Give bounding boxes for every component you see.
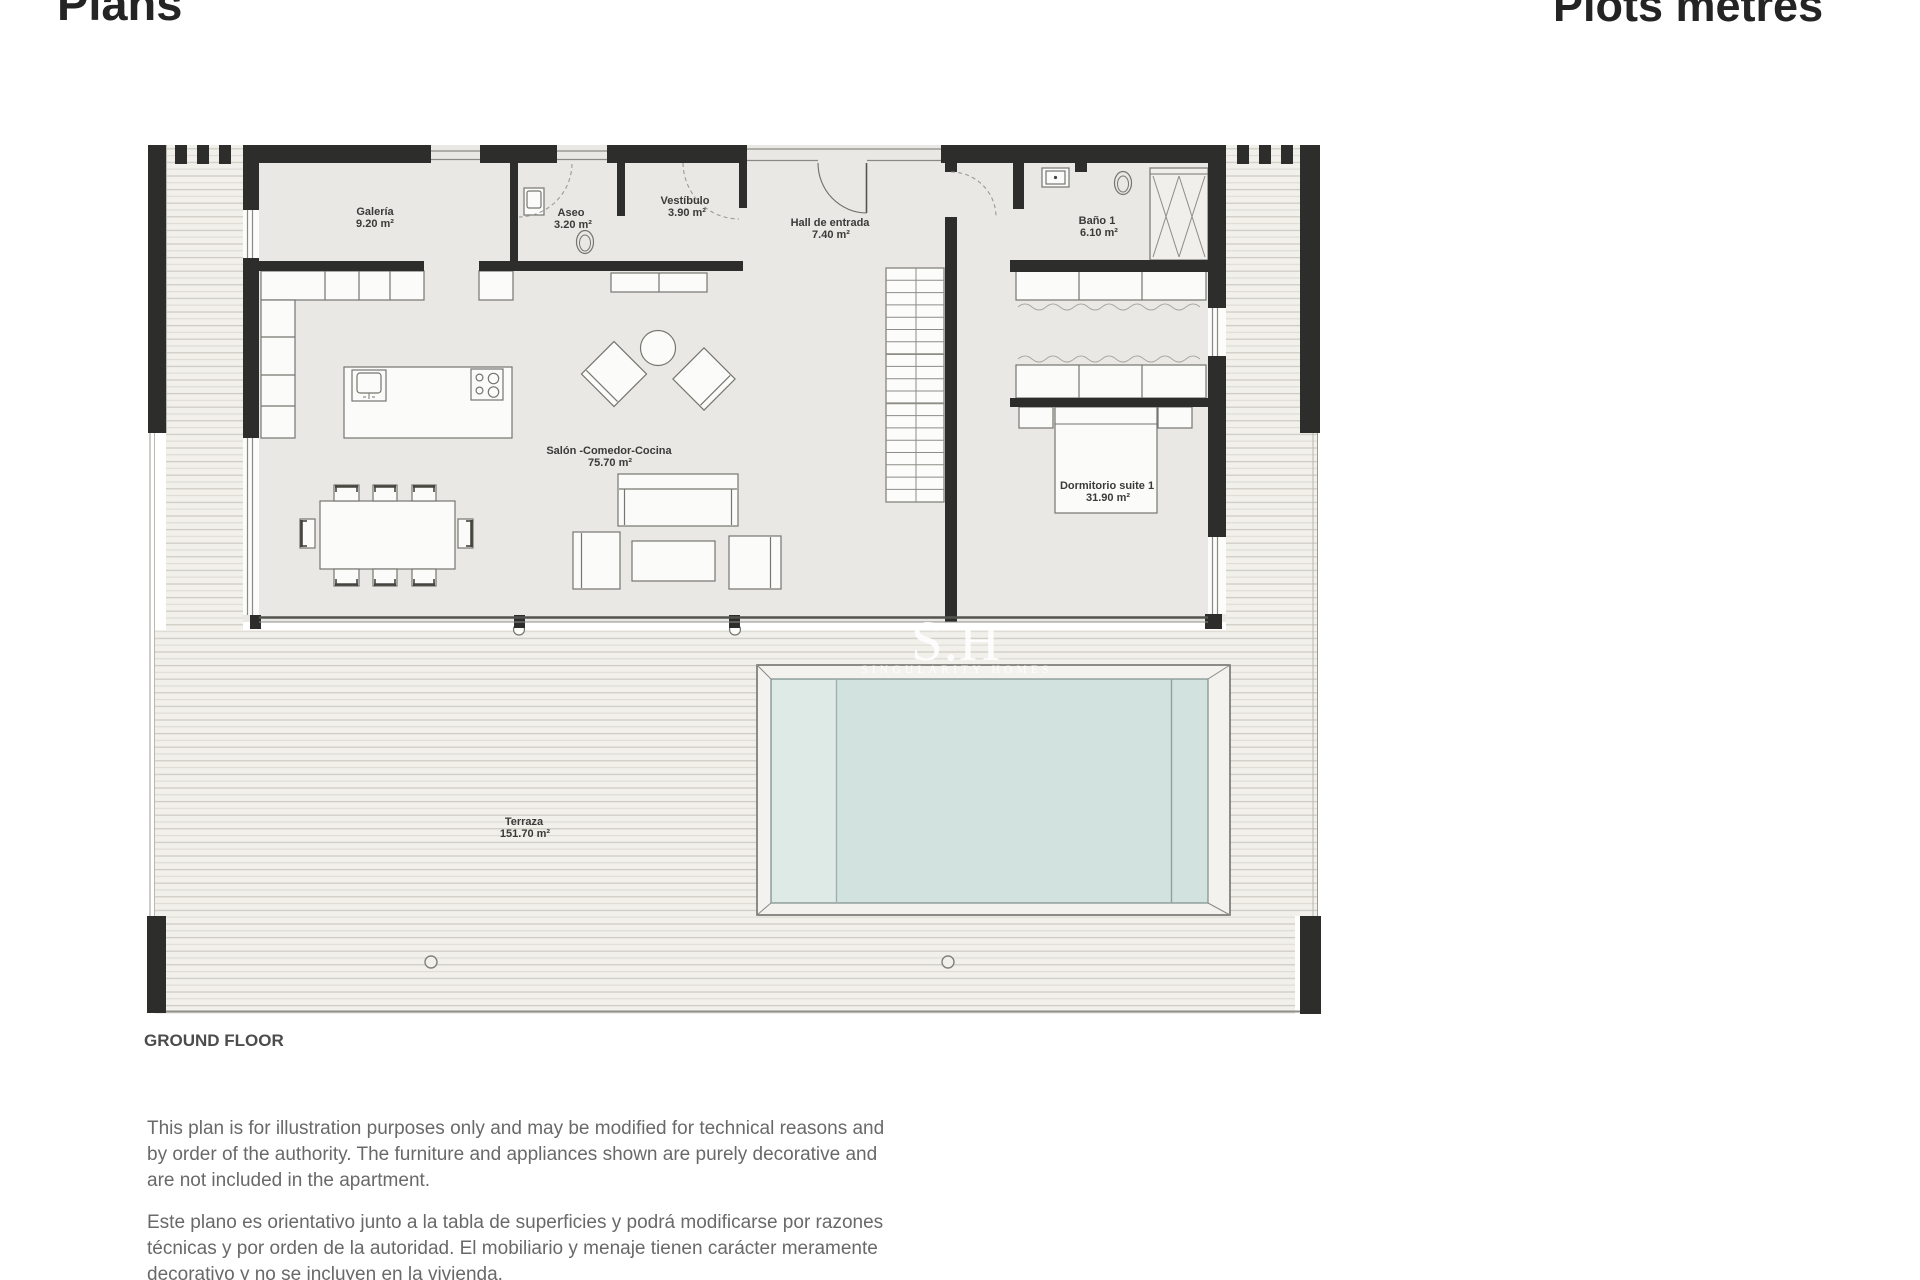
svg-text:Galería: Galería (356, 206, 394, 218)
svg-text:3.20 m²: 3.20 m² (554, 219, 592, 231)
svg-text:3.90 m²: 3.90 m² (668, 207, 706, 219)
svg-text:Aseo: Aseo (558, 207, 585, 219)
svg-text:151.70 m²: 151.70 m² (500, 828, 550, 840)
svg-text:SINGULARITY HOMES: SINGULARITY HOMES (861, 664, 1052, 676)
svg-text:Vestíbulo: Vestíbulo (661, 195, 710, 207)
svg-text:Salón -Comedor-Cocina: Salón -Comedor-Cocina (546, 445, 672, 457)
svg-text:9.20 m²: 9.20 m² (356, 218, 394, 230)
svg-text:Baño 1: Baño 1 (1079, 215, 1116, 227)
svg-text:6.10 m²: 6.10 m² (1080, 227, 1118, 239)
svg-text:Dormitorio suite 1: Dormitorio suite 1 (1060, 480, 1154, 492)
svg-text:7.40 m²: 7.40 m² (812, 229, 850, 241)
svg-text:Terraza: Terraza (505, 816, 544, 828)
svg-text:75.70 m²: 75.70 m² (588, 457, 632, 469)
svg-text:Hall de entrada: Hall de entrada (791, 217, 871, 229)
svg-text:31.90 m²: 31.90 m² (1086, 492, 1130, 504)
